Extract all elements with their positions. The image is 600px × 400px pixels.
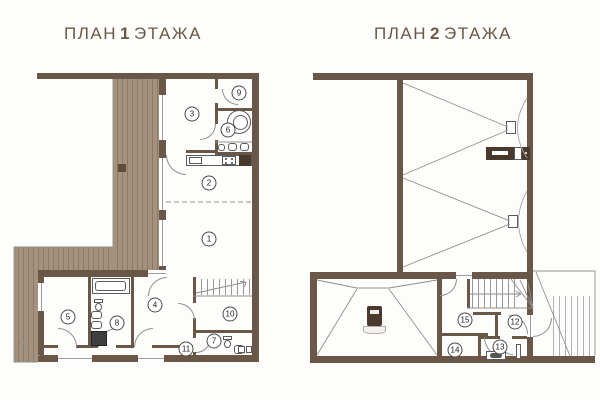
room-label-10: 10 xyxy=(223,307,238,322)
room-label-8: 8 xyxy=(110,316,125,331)
room-label-11: 11 xyxy=(179,342,194,357)
room-label-9: 9 xyxy=(232,86,247,101)
room-label-14: 14 xyxy=(448,343,463,358)
floorplan-canvas: ПЛАН1ЭТАЖА ПЛАН2ЭТАЖА xyxy=(0,0,600,400)
room-label-13: 13 xyxy=(493,340,508,355)
room-label-4: 4 xyxy=(148,298,163,313)
room-label-15: 15 xyxy=(458,313,473,328)
room-label-6: 6 xyxy=(221,123,236,138)
room-label-7: 7 xyxy=(207,334,222,349)
room-label-3: 3 xyxy=(185,107,200,122)
room-label-12: 12 xyxy=(508,315,523,330)
room-label-1: 1 xyxy=(202,232,217,247)
plan-linework xyxy=(0,0,600,400)
room-label-2: 2 xyxy=(202,176,217,191)
room-label-5: 5 xyxy=(61,310,76,325)
